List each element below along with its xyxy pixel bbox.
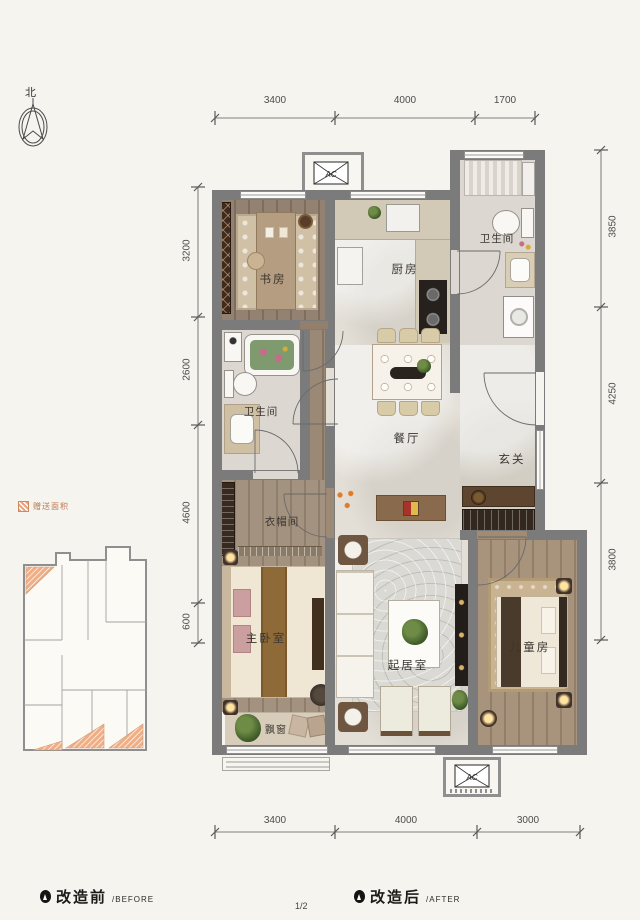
bath-top-sink [510,258,530,282]
bathtub-water [250,340,294,370]
room-label-master: 主卧室 [234,630,298,646]
room-label-bath-left: 卫生间 [229,404,293,419]
living-cabinet [376,495,446,521]
master-bench [312,598,324,670]
washing-machine [503,296,534,338]
dim-left-2: 2600 [182,340,193,400]
gift-area-swatch [18,501,29,512]
laundry-drying-rack [464,160,522,196]
entry-console [462,486,535,507]
kids-pillow [541,607,556,634]
window [492,746,558,754]
bathtub [244,334,300,376]
caption-after: 改造后 /AFTER [354,886,460,907]
living-lounge-chair [380,686,413,736]
desk-paper [279,227,288,238]
toilet-bowl-left-bath [233,372,257,396]
dim-top-3: 1700 [475,95,535,106]
kids-lamp [556,692,572,708]
dining-chair [377,401,396,416]
dim-bottom-1: 3400 [245,815,305,826]
bay-window-outer-frame [222,757,330,771]
ac-platform-top [302,152,364,194]
entry-door-opening [536,372,544,425]
dim-bottom-2: 4000 [376,815,436,826]
bath-left-shelf [224,332,242,362]
dining-chair [399,328,418,343]
cloak-hanging-rail [238,546,322,556]
dim-left-1: 3200 [182,221,193,281]
entry-coat-rack [462,509,535,532]
door-opening [300,321,328,329]
dim-top-2: 4000 [375,95,435,106]
gift-area-label: 赠送面积 [33,501,69,512]
room-label-living: 起居室 [376,657,440,673]
dim-bottom-3: 3000 [498,815,558,826]
dining-table [372,344,442,400]
master-headboard [223,567,231,697]
wall [468,532,478,745]
dim-right-3: 3800 [608,530,619,590]
window [348,746,436,754]
door-opening [326,488,334,538]
kitchen-plant [368,206,381,219]
caption-before: 改造前 /BEFORE [40,886,154,907]
before-plan-gift-areas [26,567,143,750]
wall [577,530,587,755]
ac-platform-bottom [443,757,501,797]
caption-after-subtitle: /AFTER [426,895,460,904]
room-label-dining: 餐厅 [375,430,439,446]
study-chair [247,252,265,270]
hall-corridor-floor [310,330,325,480]
chair-base [419,731,450,736]
dim-left-3: 4600 [182,483,193,543]
dining-chair [421,328,440,343]
window [240,191,306,199]
wall [300,330,310,480]
table-plant [417,359,431,373]
room-label-bay: 飘窗 [244,721,308,736]
living-armchair-frame [338,702,368,732]
master-lamp [223,550,238,565]
kids-floor-lamp [480,710,497,727]
chair-base [381,731,412,736]
north-label: 北 [25,84,43,100]
north-compass-icon [19,98,47,146]
living-armchair-frame [338,535,368,565]
living-plant-orange-tree [334,486,358,516]
living-lounge-chair [418,686,451,736]
bath-top-vanity [505,252,535,288]
entry-bowl [471,490,486,505]
dining-chair [421,401,440,416]
logo-icon [40,890,51,903]
tv-console [455,584,468,686]
kids-lamp [556,578,572,594]
door-opening [253,471,298,479]
kitchen-sink [386,204,420,232]
dim-top-1: 3400 [245,95,305,106]
kitchen-fridge [337,247,363,285]
page-number: 1/2 [295,901,308,911]
logo-icon [354,890,365,903]
living-plant-small [452,690,468,710]
room-label-kitchen: 厨房 [373,261,437,277]
logo-triangle [357,894,361,900]
room-label-entry: 玄关 [480,451,544,467]
master-pillow [233,589,251,617]
room-label-kids: 儿童房 [498,639,562,655]
door-opening [326,368,334,426]
room-label-study: 书房 [241,271,305,287]
before-plan-outline [24,547,146,750]
kitchen-stove [419,280,447,334]
door-opening [451,250,459,294]
room-label-bath-top: 卫生间 [465,231,529,246]
coffee-table-plant [402,619,428,645]
door-opening [477,531,527,539]
dining-chair [377,328,396,343]
dim-left-4: 600 [182,592,193,652]
bay-window-glazing [226,746,328,754]
washer-drum [510,308,528,326]
caption-before-subtitle: /BEFORE [112,895,154,904]
cabinet-art [403,501,419,516]
window [350,191,426,199]
dim-right-1: 3850 [608,197,619,257]
wall [325,190,335,325]
room-label-cloak: 衣帽间 [250,514,314,529]
study-clock [298,214,313,229]
dining-chair [399,401,418,416]
floorplan-page: 北 [0,0,640,920]
caption-after-title: 改造后 [370,886,421,907]
gift-area-legend: 赠送面积 [18,501,69,512]
before-plan-partitions [24,560,146,750]
laundry-cabinet [522,162,535,196]
dim-right-2: 4250 [608,364,619,424]
caption-before-title: 改造前 [56,886,107,907]
living-sofa [336,570,374,698]
ac-platform-grille [450,789,494,793]
master-lamp [223,700,238,715]
desk-paper [265,227,274,238]
window [464,151,524,159]
logo-triangle [43,894,47,900]
